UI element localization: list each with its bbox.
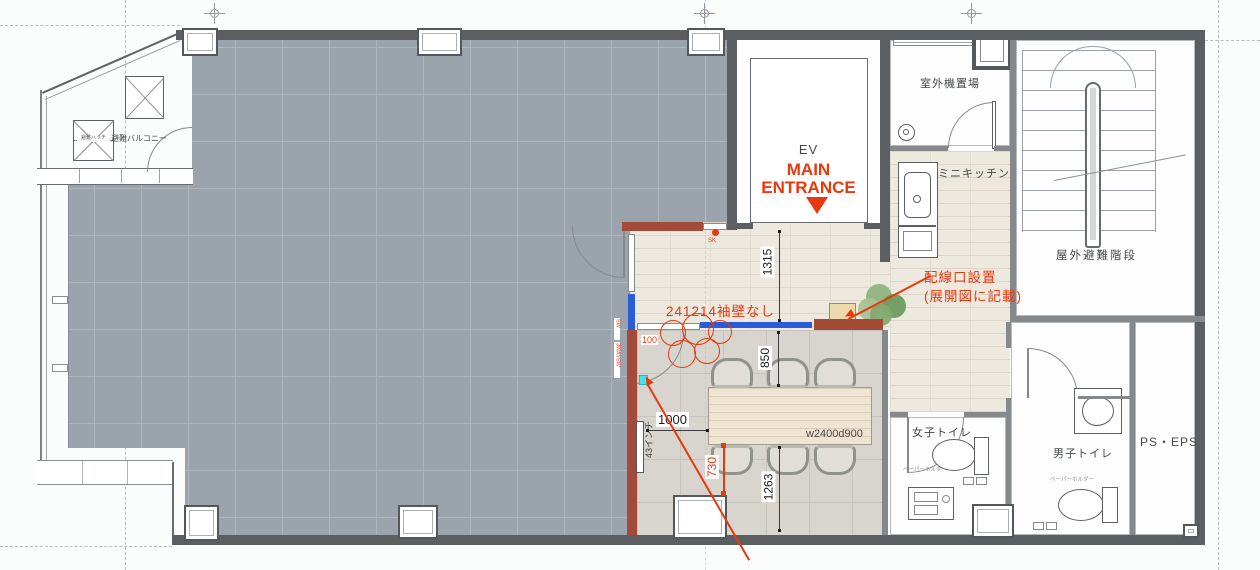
sink-unit-divider (899, 225, 936, 227)
paper-holder-box (976, 477, 987, 485)
duct-box-inner (980, 38, 1004, 62)
urinal-box (1074, 388, 1122, 434)
dim-line (647, 430, 708, 431)
urinal-bowl (1082, 396, 1114, 426)
ev-shaft-wall (880, 30, 890, 262)
ev-label: EV (737, 143, 880, 157)
dim-100: 100 (641, 335, 658, 345)
grid-marker-icon (210, 9, 219, 18)
evacuation-hatch-box (125, 76, 164, 119)
outdoor-stair-label: 屋外避難階段 (1056, 250, 1137, 263)
meeting-east-wall (882, 330, 888, 535)
balcony-support (52, 296, 68, 304)
main-entrance-line2: ENTRANCE (737, 179, 880, 197)
balcony-inner-edge (68, 185, 69, 448)
column (687, 28, 725, 56)
mens-west-wall (1006, 322, 1011, 348)
balcony-support (52, 364, 68, 372)
louver-line (894, 42, 974, 43)
stair-center-wall-core (1090, 88, 1096, 240)
revision-cloud (668, 340, 696, 368)
renovation-wall-brown (622, 222, 703, 231)
grid-marker-icon (967, 9, 976, 18)
chair (814, 445, 856, 475)
balcony-band-joint (82, 461, 83, 484)
balcony-band-joint (121, 169, 122, 183)
sk-marker-dot (712, 229, 719, 236)
ev-door (864, 223, 880, 229)
grid-centerline-horizontal (1205, 40, 1260, 41)
dim-end (778, 529, 781, 532)
chair (711, 358, 753, 388)
kitchen-south-wall (964, 412, 1010, 417)
column (417, 28, 462, 56)
drain-fixture (898, 124, 915, 141)
column (184, 505, 219, 541)
column (972, 504, 1014, 538)
kitchen-sink-unit (898, 162, 938, 258)
balcony-rail (46, 96, 47, 480)
kitchen-north-wall (994, 146, 1010, 151)
outdoor-unit-door-leaf (992, 101, 996, 149)
balcony-band-joint (127, 461, 128, 484)
dim-end (646, 429, 649, 432)
ps-eps-label: PS・EPS (1140, 436, 1198, 449)
ev-door (737, 223, 753, 229)
floor-plan: 避難ハッチ 避難バルコニー EV MAIN ENTRANCE (0, 0, 1260, 570)
highlight-wall-blue (628, 294, 635, 330)
ev-shaft-wall (727, 30, 737, 230)
dim-end-red (721, 443, 726, 448)
column (1183, 524, 1199, 538)
wiring-port-note-1: 配線口設置 (924, 266, 997, 286)
balcony-band-joint (79, 169, 80, 183)
dim-end (778, 319, 781, 322)
main-entrance-line1: MAIN (737, 161, 880, 179)
kitchen-south-wall (890, 412, 908, 417)
column (673, 495, 727, 539)
main-entrance-label: MAIN ENTRANCE (737, 161, 880, 197)
dim-end (777, 331, 780, 334)
womens-toilet-door-leaf (907, 417, 909, 473)
grid-centerline-horizontal (0, 25, 180, 26)
dim-1263: 1263 (761, 472, 775, 503)
chair (767, 358, 809, 388)
sink-lower-cabinet (903, 231, 932, 251)
womens-toilet-label: 女子トイレ (912, 427, 972, 439)
hall-door-leaf (623, 226, 625, 278)
toilet-bowl (1058, 489, 1104, 521)
mens-toilet-door-leaf (1027, 348, 1029, 398)
dim-end-red (721, 491, 726, 496)
hall-west-window (628, 234, 635, 292)
ps-eps-room (1135, 322, 1195, 535)
drain-inner (903, 129, 909, 135)
kitchen-north-wall (890, 146, 948, 151)
stair-south-wall (1010, 316, 1205, 322)
balcony-rail (40, 90, 42, 482)
mini-kitchen-label: ミニキッチン (938, 168, 1010, 180)
paper-holder-box (963, 477, 974, 485)
ps-west-wall (1130, 322, 1135, 535)
evac-balcony-label: 避難バルコニー (111, 135, 167, 144)
sk-marker-label: SK (708, 238, 716, 244)
dim-line (779, 447, 780, 530)
exterior-wall-right (1195, 30, 1205, 545)
column (398, 505, 438, 539)
evacuation-hatch-box: 避難ハッチ (73, 120, 114, 161)
dim-1315: 1315 (760, 247, 774, 278)
switch-tag-upper: SW (614, 318, 620, 340)
renovation-wall-brown (814, 319, 883, 330)
mens-toilet-label: 男子トイレ (1053, 448, 1113, 460)
dim-line (778, 332, 779, 386)
paper-holder-label: ペーパーホルダー (903, 468, 947, 474)
toilet-tank (974, 437, 989, 475)
dim-end (778, 446, 781, 449)
mens-vestibule-wall (1078, 396, 1132, 399)
monitor-size-label: 43インチ (642, 421, 655, 458)
wash-counter (908, 487, 954, 520)
switch-tag-lower: 3WAYSW (614, 342, 620, 378)
toilet-tank (1102, 487, 1118, 523)
outdoor-unit-label: 室外機置場 (920, 78, 980, 90)
stair-west-wall (1010, 40, 1016, 322)
chair (767, 445, 809, 475)
dim-850: 850 (758, 346, 772, 370)
dim-line (779, 232, 780, 320)
wiring-port-note-2: (展開図に記載) (924, 285, 1022, 305)
no-wing-wall-note: 241214袖壁なし (666, 300, 775, 320)
table-size-label: w2400d900 (806, 428, 863, 440)
revision-cloud (694, 338, 720, 364)
paper-holder-box (1033, 522, 1044, 530)
corner-wall-line (172, 462, 174, 535)
grid-centerline-vertical (1218, 0, 1219, 570)
chair (814, 358, 856, 388)
dim-line-red (723, 445, 725, 493)
stair-center-wall (1085, 82, 1101, 248)
dim-730: 730 (705, 455, 719, 479)
grid-centerline-horizontal (0, 546, 172, 547)
balcony-band-lower (37, 460, 173, 485)
sink-drain (913, 195, 921, 203)
paper-holder-label: ペーパーホルダー (1050, 478, 1094, 484)
evac-hatch-label: 避難ハッチ (77, 136, 110, 142)
dim-end (706, 429, 709, 432)
wash-counter-inner (914, 505, 938, 515)
entrance-arrow-icon (806, 197, 828, 214)
paper-holder-box (1046, 522, 1057, 530)
wash-counter-inner (914, 492, 938, 502)
wash-counter-bowl (942, 495, 950, 503)
column (182, 28, 218, 56)
dim-end (777, 384, 780, 387)
dim-end (778, 230, 781, 233)
